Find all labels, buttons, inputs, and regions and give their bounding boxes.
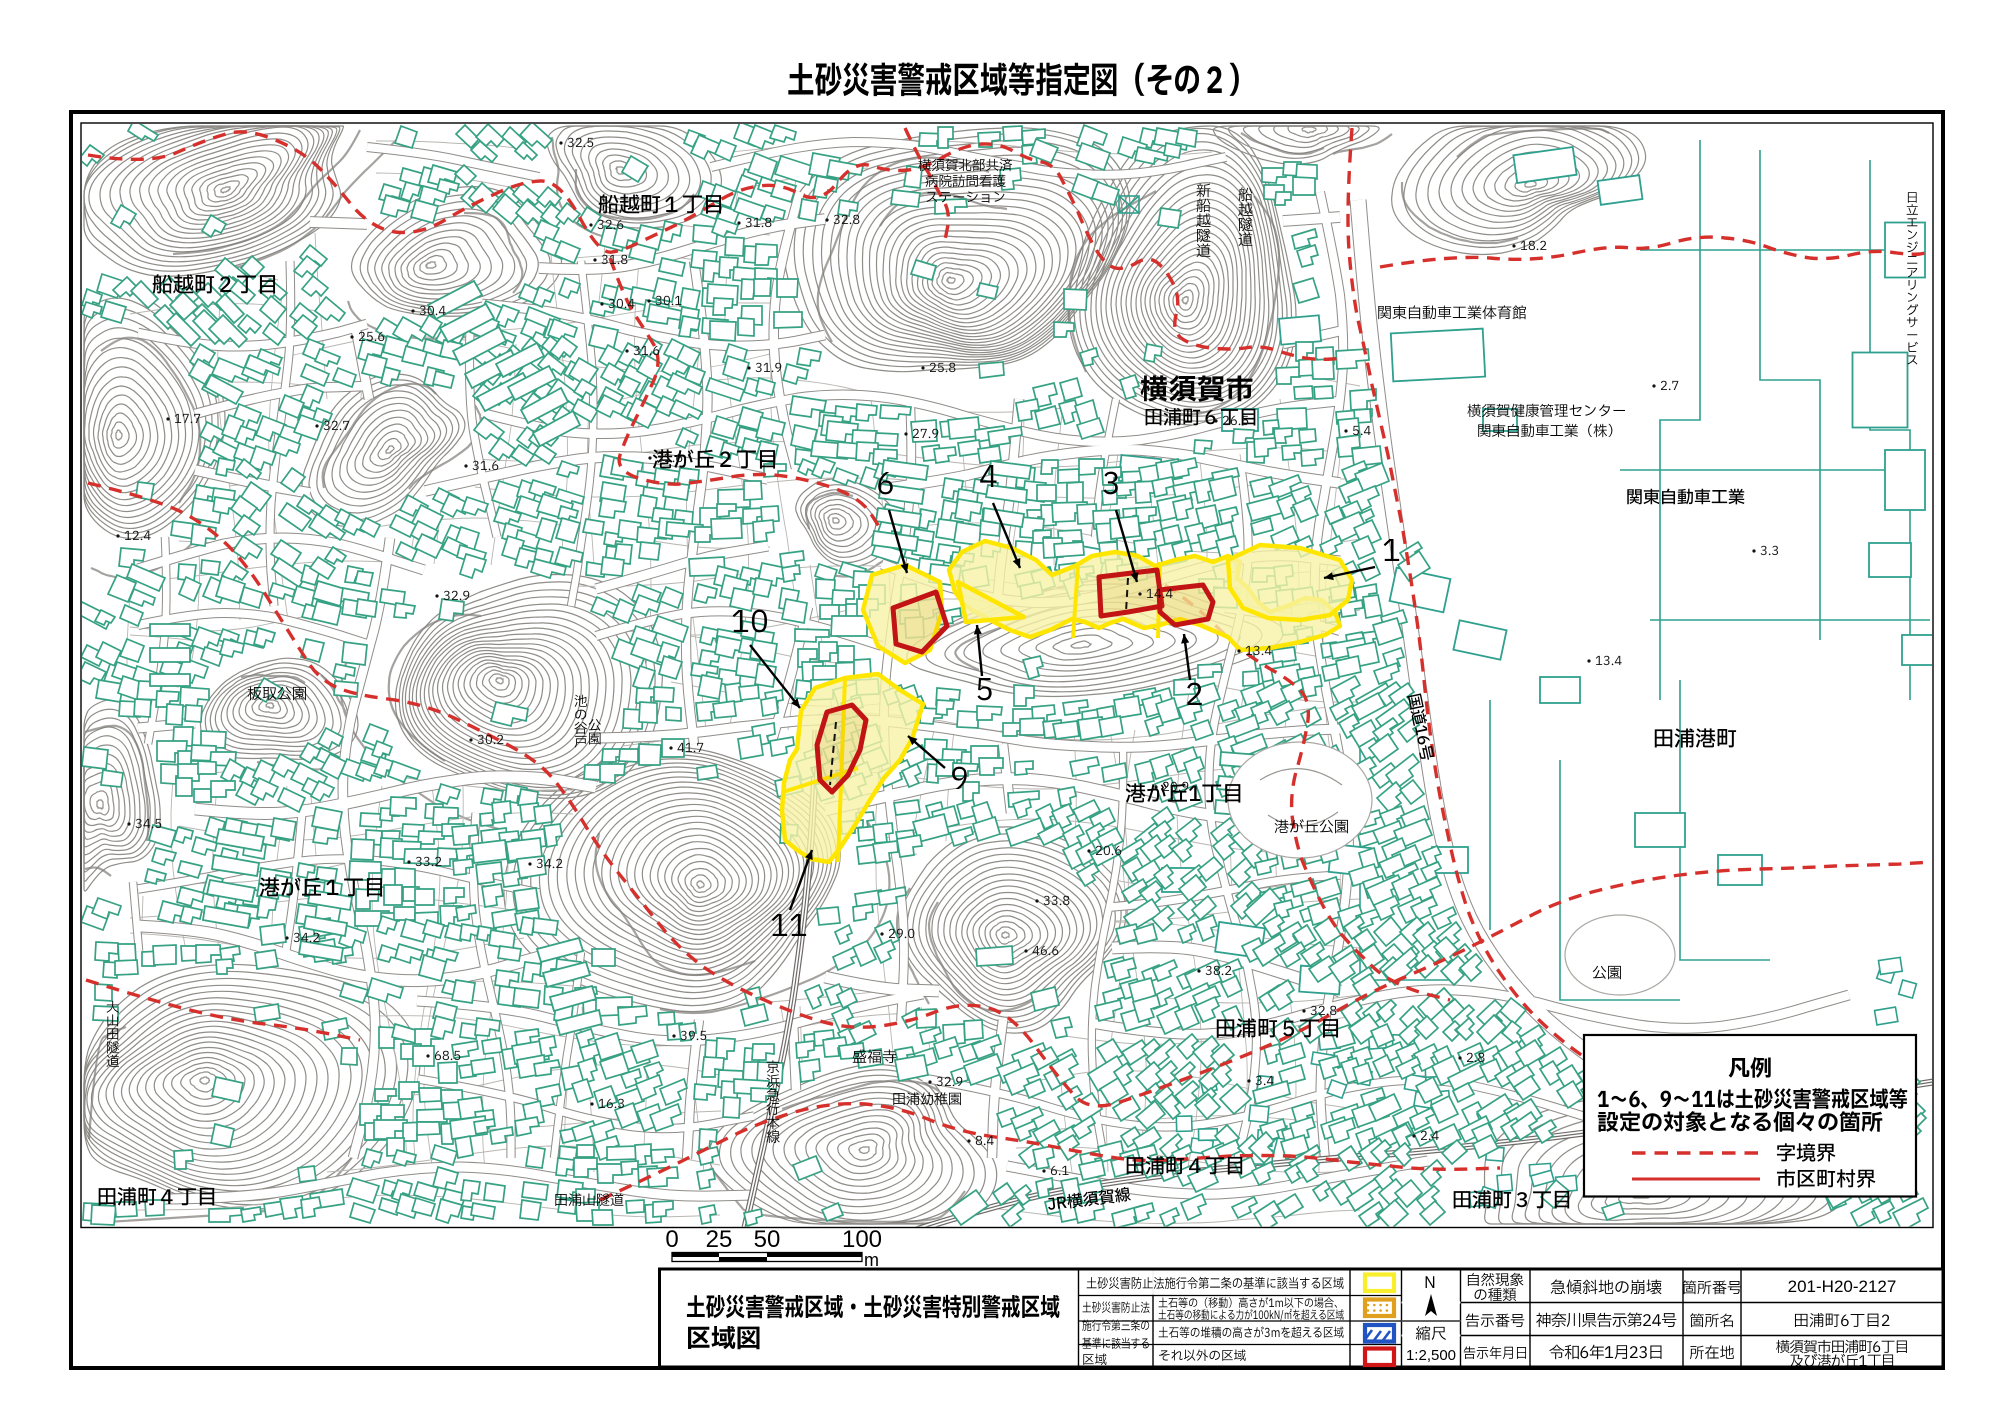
- svg-text:m: m: [864, 1250, 879, 1270]
- svg-text:1:2,500: 1:2,500: [1406, 1347, 1456, 1364]
- svg-text:25: 25: [706, 1226, 733, 1253]
- svg-text:201-H20-2127: 201-H20-2127: [1788, 1277, 1897, 1296]
- svg-text:50: 50: [754, 1226, 781, 1253]
- svg-text:0: 0: [665, 1226, 678, 1253]
- svg-text:100: 100: [842, 1226, 882, 1253]
